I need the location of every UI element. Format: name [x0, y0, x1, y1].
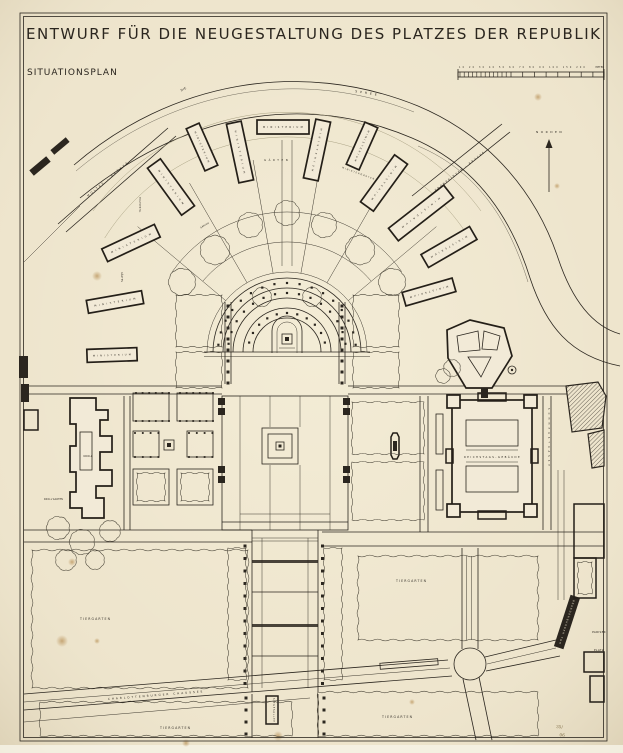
scale-unit-label: METER	[595, 66, 604, 69]
label-tiergarten: TIERGARTEN	[79, 617, 111, 621]
inventory-line1: 35/	[556, 724, 564, 729]
inventory-line2: 06	[559, 732, 565, 737]
label-krollgarten: KROLL'GARTEN	[44, 498, 63, 501]
label-moltkestrasse: MOLTKESTR.	[138, 197, 141, 213]
ministry-building: MINISTERIUM	[87, 348, 137, 363]
situationsplan-sheet: ENTWURF FÜR DIE NEUGESTALTUNG DES PLATZE…	[0, 0, 623, 753]
label-tiergarten: TIERGARTEN	[395, 579, 427, 583]
label-tiergarten: TIERGARTEN	[381, 715, 413, 719]
label-tiergarten: TIERGARTEN	[159, 726, 191, 730]
ministry-building: MINISTERIUM	[257, 120, 309, 134]
scanned-plan-photo: ENTWURF FÜR DIE NEUGESTALTUNG DES PLATZE…	[0, 0, 623, 753]
page-title: ENTWURF FÜR DIE NEUGESTALTUNG DES PLATZE…	[26, 24, 601, 43]
label-gaerten: GÄRTEN	[120, 272, 123, 282]
label-pariser: PARISER	[592, 630, 606, 634]
label-kroll: KROLL	[83, 455, 92, 458]
reichstag-building: REICHSTAGS-GEBÄUDE	[436, 393, 538, 519]
sheet-subtitle: SITUATIONSPLAN	[27, 68, 119, 78]
